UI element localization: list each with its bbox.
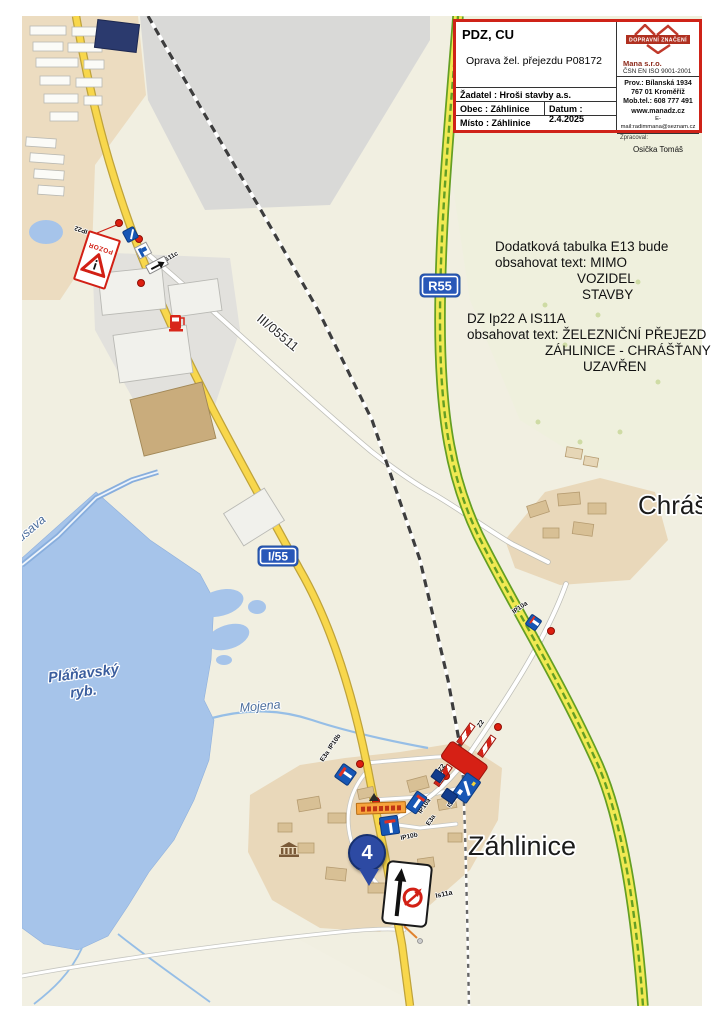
dopravni-znaceni-logo-icon: DOPRAVNÍ ZNAČENÍ [625, 24, 691, 54]
poi-label-badge [356, 801, 406, 815]
title-block: PDZ, CU Oprava žel. přejezdu P08172 Žada… [453, 19, 702, 133]
document-title: Oprava žel. přejezdu P08172 [466, 55, 610, 67]
annotation-line: obsahovat text: MIMO [495, 255, 668, 271]
address-line: Prov.: Bílanská 1934 [618, 79, 698, 88]
title-block-left: PDZ, CU Oprava žel. přejezdu P08172 Žada… [456, 22, 617, 130]
address-line: 767 01 Kroměříž [618, 88, 698, 97]
sign-glyph [130, 229, 134, 239]
sign-glyph [463, 781, 470, 796]
company-logo: DOPRAVNÍ ZNAČENÍ Mana s.r.o. ČSN EN ISO … [617, 22, 699, 77]
annotation-dz: DZ Ip22 A IS11A obsahovat text: ŽELEZNIČ… [467, 311, 711, 375]
ip10b-dead-end-sign-icon [379, 815, 400, 836]
road-shield-r55: R55 [420, 274, 460, 297]
annotation-line: Dodatková tabulka E13 bude [495, 239, 668, 255]
road-shield-i55: I/55 [258, 546, 298, 566]
shield-r55-text: R55 [428, 279, 452, 294]
annotation-line: DZ Ip22 A IS11A [467, 311, 711, 327]
shield-i55-text: I/55 [268, 550, 288, 564]
document-type: PDZ, CU [462, 27, 610, 42]
prepared-by-label: Zpracoval: [620, 135, 648, 141]
annotation-line: ZÁHLINICE - CHRÁŠŤANY [545, 343, 711, 359]
map-pin-marker: 4 [348, 834, 386, 872]
sign-glyph [141, 246, 147, 252]
building-dark [94, 20, 139, 53]
annotation-line: VOZIDEL [577, 271, 668, 287]
pond-label-line2: ryb. [69, 682, 97, 701]
iso-certification: ČSN EN ISO 9001-2001 [617, 68, 699, 75]
email-line: E-mail:radimmana@seznam.cz [618, 116, 698, 131]
annotation-line: UZAVŘEN [583, 359, 711, 375]
phone-line: Mob.tel.: 608 777 491 [618, 97, 698, 106]
title-block-header: PDZ, CU Oprava žel. přejezdu P08172 [456, 22, 616, 88]
prepared-by-cell: Zpracoval: Osička Tomáš [617, 134, 699, 155]
sign-glyph [471, 781, 476, 786]
place-row: Místo : Záhlinice [456, 116, 616, 130]
place-label-zahlinice: Záhlinice [468, 831, 576, 861]
applicant-row: Žadatel : Hroši stavby a.s. [456, 88, 616, 102]
company-address: Prov.: Bílanská 1934 767 01 Kroměříž Mob… [617, 77, 699, 134]
municipality-cell: Obec : Záhlinice [456, 102, 544, 115]
pin-number: 4 [361, 842, 372, 865]
is11a-diagram-icon [385, 865, 428, 923]
poi-triangle-icon [369, 793, 379, 801]
annotation-line: obsahovat text: ŽELEZNIČNÍ PŘEJEZD [467, 327, 711, 343]
is11a-detour-sign-icon [381, 860, 433, 928]
company-name: Mana s.r.o. [617, 59, 699, 68]
website-line: www.manadz.cz [618, 107, 698, 116]
logo-text: DOPRAVNÍ ZNAČENÍ [629, 36, 687, 44]
prepared-by-name: Osička Tomáš [620, 145, 696, 154]
sign-glyph [389, 822, 394, 833]
poi-label-text-marks [361, 805, 401, 811]
z2-barrier-icon [477, 734, 496, 758]
annotation-e13: Dodatková tabulka E13 bude obsahovat tex… [495, 239, 668, 303]
title-block-right: DOPRAVNÍ ZNAČENÍ Mana s.r.o. ČSN EN ISO … [617, 22, 699, 130]
annotation-line: STAVBY [582, 287, 668, 303]
place-label-chrastany: Chrášťany [638, 490, 724, 520]
date-cell: Datum : 2.4.2025 [544, 102, 616, 115]
municipality-date-row: Obec : Záhlinice Datum : 2.4.2025 [456, 102, 616, 116]
